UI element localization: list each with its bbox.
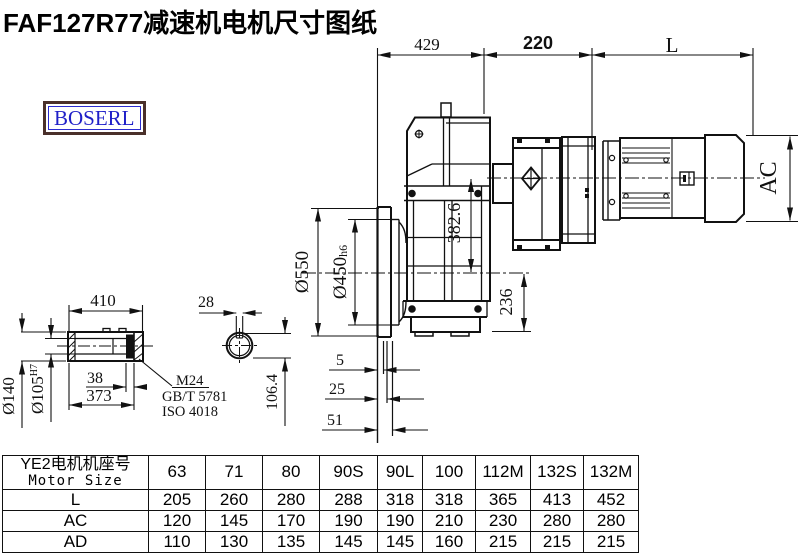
dim-5-label: 5 <box>336 352 344 369</box>
motor-size-table: YE2电机机座号 Motor Size 63 71 80 90S 90L 100… <box>2 455 639 553</box>
dim-236-label: 236 <box>496 289 516 316</box>
dim-429-label: 429 <box>414 35 440 54</box>
table-row-label: L <box>3 490 149 511</box>
dim-106-label: 106.4 <box>264 374 281 410</box>
table-col-header: 90L <box>378 456 423 490</box>
dim-bore-label: Ø105H7 <box>28 364 47 414</box>
table-cell: 110 <box>149 532 206 553</box>
dim-38-label: 38 <box>87 370 103 387</box>
dim-bore-value: Ø105 <box>28 376 47 414</box>
dim-28-label: 28 <box>198 294 214 311</box>
table-cell: 170 <box>263 511 320 532</box>
table-cell: 190 <box>378 511 423 532</box>
table-cell: 280 <box>584 511 639 532</box>
hollow-shaft-detail <box>57 316 257 363</box>
table-cell: 318 <box>378 490 423 511</box>
table-row-L: L 205 260 280 288 318 318 365 413 452 <box>3 490 639 511</box>
table-header-cn: YE2电机机座号 <box>3 456 148 473</box>
table-cell: 280 <box>263 490 320 511</box>
table-cell: 135 <box>263 532 320 553</box>
table-col-header: 132S <box>531 456 584 490</box>
note-std-gbt: GB/T 5781 <box>162 389 227 405</box>
table-cell: 130 <box>206 532 263 553</box>
table-col-header: 71 <box>206 456 263 490</box>
dim-shaft <box>21 305 291 428</box>
table-col-header: 100 <box>423 456 476 490</box>
dim-pilot-tol: h6 <box>336 245 350 257</box>
table-cell: 145 <box>206 511 263 532</box>
dim-25-label: 25 <box>329 381 345 398</box>
dim-shaft-od-label: Ø140 <box>0 377 18 415</box>
table-cell: 260 <box>206 490 263 511</box>
table-cell: 215 <box>584 532 639 553</box>
dim-410-label: 410 <box>90 291 116 310</box>
table-col-header: 132M <box>584 456 639 490</box>
table-header-motor-size: YE2电机机座号 Motor Size <box>3 456 149 490</box>
dim-pilot-label: Ø450h6 <box>330 245 351 299</box>
table-row-AC: AC 120 145 170 190 190 210 230 280 280 <box>3 511 639 532</box>
table-cell: 190 <box>320 511 378 532</box>
dim-AC-label: AC <box>756 161 782 194</box>
table-col-header: 112M <box>476 456 531 490</box>
table-col-header: 63 <box>149 456 206 490</box>
table-col-header: 90S <box>320 456 378 490</box>
table-cell: 160 <box>423 532 476 553</box>
dim-pilot-value: Ø450 <box>330 257 351 299</box>
table-cell: 413 <box>531 490 584 511</box>
table-cell: 318 <box>423 490 476 511</box>
table-cell: 120 <box>149 511 206 532</box>
table-row-label: AD <box>3 532 149 553</box>
table-row-AD: AD 110 130 135 145 145 160 215 215 215 <box>3 532 639 553</box>
motor-assembly <box>487 135 765 250</box>
dim-L-label: L <box>666 33 679 57</box>
table-cell: 215 <box>531 532 584 553</box>
table-cell: 205 <box>149 490 206 511</box>
table-cell: 215 <box>476 532 531 553</box>
table-cell: 145 <box>320 532 378 553</box>
dim-373-label: 373 <box>86 386 112 405</box>
table-cell: 210 <box>423 511 476 532</box>
dim-51-label: 51 <box>327 412 343 429</box>
note-std-iso: ISO 4018 <box>162 404 218 420</box>
table-col-header: 80 <box>263 456 320 490</box>
dim-220-label: 220 <box>523 33 553 53</box>
dim-axis-height-label: 382.6 <box>444 203 464 244</box>
note-thread: M24 <box>176 373 204 389</box>
table-cell: 365 <box>476 490 531 511</box>
table-cell: 452 <box>584 490 639 511</box>
drawing-sheet: FAF127R77减速机电机尺寸图纸 BOSERL <box>0 0 800 557</box>
dim-bore-tol: H7 <box>29 364 40 376</box>
dim-flange-od-label: Ø550 <box>292 251 313 293</box>
table-cell: 288 <box>320 490 378 511</box>
table-cell: 230 <box>476 511 531 532</box>
table-cell: 145 <box>378 532 423 553</box>
dim-top-chain <box>378 48 754 207</box>
table-row-label: AC <box>3 511 149 532</box>
table-header-en: Motor Size <box>3 473 148 489</box>
table-cell: 280 <box>531 511 584 532</box>
